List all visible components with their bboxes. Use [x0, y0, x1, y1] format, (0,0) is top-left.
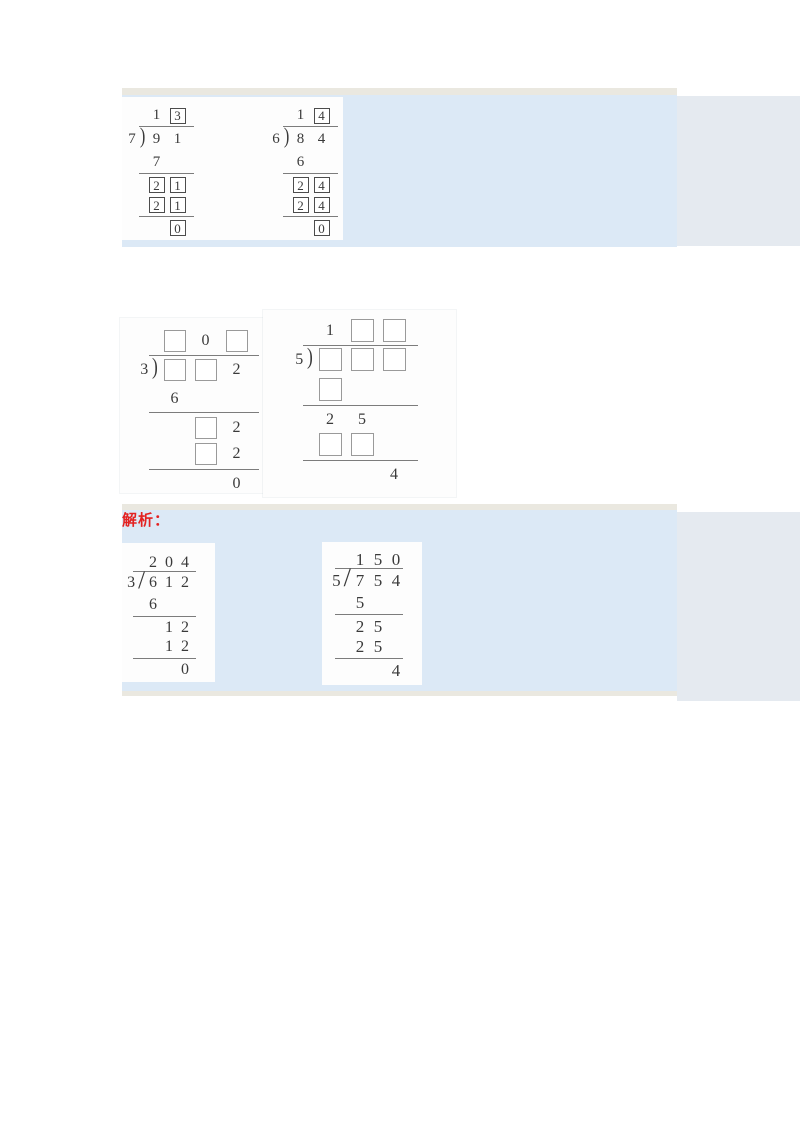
box-cell — [190, 417, 221, 439]
box-cell — [314, 378, 346, 401]
blank-answer-box — [319, 348, 342, 371]
boxed-digit: 1 — [170, 177, 186, 193]
work-row: 21 — [146, 176, 194, 194]
long-division-blank-by-3: 03)26220 — [125, 330, 264, 493]
box-cell — [346, 433, 378, 456]
boxed-digit: 2 — [149, 197, 165, 213]
quotient-row: 14 — [290, 107, 338, 124]
box-cell: 2 — [290, 197, 311, 213]
scanned-image-solution-left: 2043/612612120 — [122, 543, 215, 682]
digit-cell: 7 — [351, 572, 369, 589]
divisor-zone: 7) — [128, 128, 146, 150]
divisor-digit: 7 — [128, 132, 136, 147]
box-cell: 0 — [167, 220, 188, 236]
divisor-digit: 5 — [332, 572, 341, 589]
blank-answer-box — [226, 330, 248, 352]
blank-answer-box — [164, 330, 186, 352]
work-row: 0 — [177, 662, 215, 678]
digit-cell: 0 — [161, 555, 177, 571]
scanned-image-fill-in-left: 03)26220 — [120, 318, 264, 493]
work-row: 24 — [290, 176, 338, 194]
division-bracket: ) — [152, 356, 158, 379]
work-row: 0 — [167, 219, 194, 237]
digit-cell: 1 — [161, 620, 177, 636]
long-division-84-by-6: 146)84624240 — [272, 107, 338, 240]
box-cell: 2 — [290, 177, 311, 193]
divisor-zone: 3/ — [126, 571, 145, 596]
box-cell — [346, 348, 378, 371]
box-cell — [190, 443, 221, 465]
scanned-image-fill-in-right: 15)254 — [263, 310, 456, 497]
work-row — [314, 433, 456, 456]
subtraction-line — [303, 405, 418, 406]
digit-cell: 2 — [177, 639, 193, 655]
digit-cell: 4 — [387, 662, 405, 679]
box-cell — [159, 359, 190, 381]
digit-cell: 2 — [177, 620, 193, 636]
digit-cell: 2 — [314, 412, 346, 428]
box-cell — [314, 348, 346, 371]
work-row: 2 — [190, 417, 264, 439]
quotient-row: 0 — [159, 330, 264, 352]
subtraction-line — [303, 460, 418, 461]
dividend-row: 3)2 — [125, 358, 264, 381]
quotient-row: 150 — [351, 551, 422, 567]
boxed-digit: 2 — [149, 177, 165, 193]
long-division-91-by-7: 137)91721210 — [128, 107, 194, 240]
box-cell — [314, 433, 346, 456]
box-cell — [221, 330, 252, 352]
divisor-zone: 5) — [270, 348, 314, 371]
side-strip-top — [677, 96, 800, 246]
work-row: 25 — [351, 638, 422, 655]
digit-cell: 4 — [311, 132, 332, 147]
boxed-digit: 0 — [170, 220, 186, 236]
box-cell — [346, 319, 378, 342]
analysis-label: 解析： — [122, 509, 170, 530]
work-row: 6 — [290, 153, 338, 171]
division-bracket: ) — [284, 126, 289, 148]
divisor-zone: 6) — [272, 128, 290, 150]
work-row: 7 — [146, 153, 194, 171]
work-row: 4 — [387, 662, 422, 679]
worksheet-page: 137)91721210 146)84624240 03)26220 15)25… — [0, 0, 800, 1132]
boxed-digit: 2 — [293, 177, 309, 193]
box-cell: 4 — [311, 108, 332, 124]
digit-cell: 4 — [378, 467, 410, 483]
boxed-digit: 4 — [314, 197, 330, 213]
blank-answer-box — [164, 359, 186, 381]
digit-cell: 0 — [221, 476, 252, 492]
divisor-digit: 5 — [295, 352, 303, 368]
digit-cell: 6 — [290, 155, 311, 170]
long-division-612-by-3: 2043/612612120 — [126, 555, 215, 678]
digit-cell: 2 — [351, 618, 369, 635]
box-cell — [190, 359, 221, 381]
divisor-digit: 3 — [127, 575, 135, 591]
boxed-digit: 0 — [314, 220, 330, 236]
subtraction-line — [133, 658, 196, 659]
divisor-digit: 6 — [272, 132, 280, 147]
blank-answer-box — [383, 348, 406, 371]
digit-cell: 9 — [146, 132, 167, 147]
boxed-digit: 3 — [170, 108, 186, 124]
digit-cell: 2 — [177, 575, 193, 591]
digit-cell: 0 — [190, 333, 221, 349]
digit-cell: 7 — [146, 155, 167, 170]
digit-cell: 8 — [290, 132, 311, 147]
digit-cell: 1 — [314, 323, 346, 339]
vinculum-line — [139, 126, 194, 127]
subtraction-line — [139, 216, 194, 217]
digit-cell: 0 — [177, 662, 193, 678]
subtraction-line — [335, 614, 403, 615]
digit-cell: 1 — [167, 132, 188, 147]
long-division-754-by-5: 1505/754525254 — [326, 551, 422, 679]
digit-cell: 2 — [145, 555, 161, 571]
blank-answer-box — [195, 417, 217, 439]
boxed-digit: 1 — [170, 197, 186, 213]
box-cell — [378, 319, 410, 342]
division-bracket: ) — [307, 346, 313, 369]
work-row: 21 — [146, 196, 194, 214]
scanned-image-boxed-divisions: 137)91721210 146)84624240 — [122, 97, 343, 240]
box-cell: 4 — [311, 197, 332, 213]
work-row — [314, 378, 456, 401]
quotient-row: 204 — [145, 555, 215, 570]
vinculum-line — [283, 126, 338, 127]
digit-cell: 2 — [221, 446, 252, 462]
digit-cell: 5 — [369, 572, 387, 589]
work-row: 12 — [161, 639, 215, 655]
subtraction-line — [283, 173, 338, 174]
division-bracket: / — [344, 565, 351, 591]
boxed-digit: 4 — [314, 108, 330, 124]
work-row: 5 — [351, 594, 422, 611]
blank-answer-box — [319, 378, 342, 401]
side-strip-bottom — [677, 512, 800, 701]
digit-cell: 2 — [221, 420, 252, 436]
work-row: 2 — [190, 443, 264, 465]
vinculum-line — [149, 355, 259, 356]
subtraction-line — [149, 412, 259, 413]
digit-cell: 0 — [387, 551, 405, 568]
digit-cell: 5 — [346, 412, 378, 428]
work-row: 12 — [161, 620, 215, 636]
blank-answer-box — [351, 348, 374, 371]
box-cell: 4 — [311, 177, 332, 193]
box-cell — [378, 348, 410, 371]
digit-cell: 1 — [161, 639, 177, 655]
box-cell: 2 — [146, 177, 167, 193]
divisor-zone: 3) — [125, 358, 159, 381]
division-bracket: ) — [140, 126, 145, 148]
work-row: 0 — [221, 474, 264, 493]
blank-answer-box — [383, 319, 406, 342]
subtraction-line — [283, 216, 338, 217]
blank-answer-box — [195, 443, 217, 465]
box-cell: 1 — [167, 197, 188, 213]
divisor-digit: 3 — [140, 362, 148, 378]
dividend-row: 5) — [270, 348, 456, 371]
dividend-row: 6)84 — [272, 129, 338, 149]
quotient-row: 13 — [146, 107, 194, 124]
long-division-blank-by-5: 15)254 — [270, 319, 456, 484]
scanned-image-solution-right: 1505/754525254 — [322, 542, 422, 685]
box-cell — [159, 330, 190, 352]
subtraction-line — [335, 658, 403, 659]
blank-answer-box — [319, 433, 342, 456]
box-cell: 0 — [311, 220, 332, 236]
dividend-row: 7)91 — [128, 129, 194, 149]
digit-cell: 5 — [369, 551, 387, 568]
digit-cell: 6 — [145, 575, 161, 591]
box-cell: 2 — [146, 197, 167, 213]
work-row: 6 — [145, 597, 215, 613]
boxed-digit: 4 — [314, 177, 330, 193]
divisor-zone: 5/ — [326, 567, 351, 593]
subtraction-line — [133, 616, 196, 617]
work-row: 4 — [378, 465, 456, 484]
digit-cell: 5 — [351, 594, 369, 611]
blank-answer-box — [351, 319, 374, 342]
digit-cell: 6 — [145, 597, 161, 613]
boxed-digit: 2 — [293, 197, 309, 213]
dividend-row: 3/612 — [126, 574, 215, 592]
subtraction-line — [149, 469, 259, 470]
work-row: 25 — [351, 618, 422, 635]
subtraction-line — [139, 173, 194, 174]
digit-cell: 1 — [290, 108, 311, 123]
digit-cell: 6 — [159, 391, 190, 407]
work-row: 0 — [311, 219, 338, 237]
digit-cell: 4 — [177, 555, 193, 571]
blank-answer-box — [351, 433, 374, 456]
digit-cell: 1 — [146, 108, 167, 123]
digit-cell: 5 — [369, 618, 387, 635]
digit-cell: 2 — [351, 638, 369, 655]
digit-cell: 1 — [351, 551, 369, 568]
work-row: 25 — [314, 410, 456, 429]
work-row: 6 — [159, 389, 264, 408]
dividend-row: 5/754 — [326, 571, 422, 589]
work-row: 24 — [290, 196, 338, 214]
digit-cell: 2 — [221, 362, 252, 378]
vinculum-line — [303, 345, 418, 346]
digit-cell: 5 — [369, 638, 387, 655]
blank-answer-box — [195, 359, 217, 381]
quotient-row: 1 — [314, 319, 456, 342]
digit-cell: 4 — [387, 572, 405, 589]
division-bracket: / — [138, 569, 145, 594]
digit-cell: 1 — [161, 575, 177, 591]
box-cell: 3 — [167, 108, 188, 124]
box-cell: 1 — [167, 177, 188, 193]
